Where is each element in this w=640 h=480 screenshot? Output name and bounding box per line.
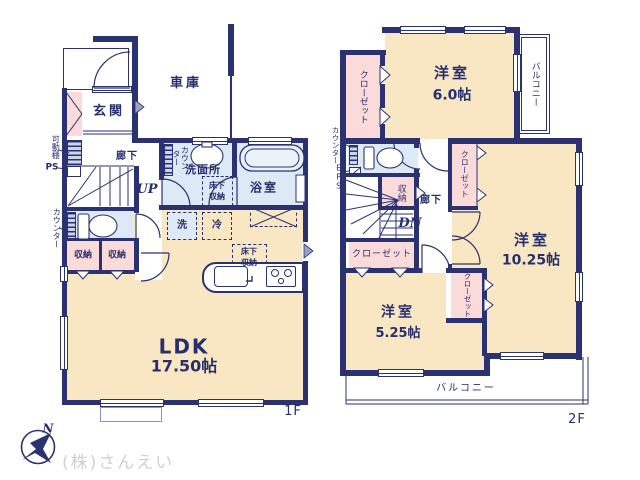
- balcony-door: [513, 54, 521, 92]
- wall: [380, 50, 385, 66]
- room-525jo: [345, 273, 446, 371]
- label-fridge: 冷: [212, 221, 222, 232]
- wall: [340, 50, 346, 376]
- wall: [93, 36, 137, 42]
- label-washroom: 洗面所: [185, 164, 221, 176]
- watermark: (株)さんえい: [62, 448, 174, 473]
- wall: [62, 282, 67, 316]
- label-ldk-name: LDK: [159, 337, 210, 358]
- room-6jo: [385, 32, 515, 139]
- wall: [380, 84, 385, 108]
- wall: [448, 138, 582, 144]
- wall: [424, 370, 490, 376]
- label-balcony-south: バルコニー: [436, 384, 496, 395]
- wall: [134, 238, 139, 272]
- window: [92, 86, 132, 93]
- wall: [446, 27, 464, 33]
- wall: [340, 138, 420, 144]
- wall: [448, 143, 452, 212]
- label-floor-2f: 2F: [568, 413, 586, 427]
- entrance-porch: [63, 48, 129, 90]
- label-underfloor-front-l2: 収納: [209, 193, 225, 201]
- wall-garage-roofline: [230, 76, 232, 142]
- window: [500, 352, 544, 360]
- room-bath: [233, 143, 305, 210]
- label-room1025-name: 洋室: [514, 233, 550, 249]
- back-door-opening: [302, 242, 310, 261]
- compass-needle: [22, 433, 51, 463]
- label-room525-name: 洋室: [381, 306, 415, 321]
- label-hallway-2f: 廊下: [420, 196, 442, 207]
- label-floor-1f: 1F: [284, 405, 302, 419]
- label-room6-name: 洋室: [434, 66, 470, 82]
- label-room525-size: 5.25帖: [375, 327, 420, 341]
- wall: [514, 92, 520, 143]
- wall: [303, 143, 308, 243]
- window: [248, 137, 292, 145]
- label-entrance: 玄関: [93, 105, 125, 119]
- label-garage: 車庫: [170, 77, 202, 91]
- wall-garage-roofline: [228, 24, 234, 76]
- label-room1025-size: 10.25帖: [502, 254, 560, 269]
- label-eps: EPS: [334, 164, 342, 191]
- room-525jo-extension: [446, 322, 484, 371]
- corridor-strip-1f: [135, 210, 162, 280]
- wall: [340, 370, 378, 376]
- wall: [132, 36, 138, 143]
- shoe-cabinet: [66, 92, 82, 136]
- window-sliding-door: [100, 399, 164, 407]
- label-closet-northwest: クローゼット: [357, 70, 366, 124]
- wall: [490, 353, 500, 359]
- floorplan-canvas: { "colors":{"wall_navy":"#2a3272","text_…: [0, 0, 640, 480]
- window: [60, 266, 68, 282]
- label-movable-shelf: 可動棚: [51, 135, 59, 159]
- label-balcony-east: バルコニー: [529, 62, 538, 107]
- wall: [99, 240, 102, 271]
- label-underfloor-front-l1: 床下: [209, 182, 225, 190]
- window: [60, 316, 68, 370]
- wall: [482, 268, 487, 356]
- wall: [232, 143, 237, 177]
- label-counter-2f: カウンター: [331, 126, 339, 164]
- movable-shelf: [67, 140, 82, 165]
- wall: [446, 318, 486, 323]
- compass-north-label: N: [43, 423, 54, 436]
- wall: [345, 238, 418, 242]
- terrace-step: [100, 407, 162, 422]
- toilet-counter-1f: [67, 212, 76, 239]
- wall: [159, 143, 164, 180]
- label-bath: 浴室: [250, 182, 278, 195]
- label-closet-east: クローゼット: [460, 150, 468, 198]
- window: [400, 26, 446, 34]
- wall: [514, 27, 520, 54]
- kitchen-stove: [266, 266, 296, 287]
- label-toilet-counter-1f: カウンター: [52, 208, 60, 248]
- label-pipe-space: PS: [45, 163, 58, 172]
- wall: [576, 138, 582, 152]
- window: [575, 152, 583, 186]
- wall: [576, 186, 582, 272]
- window: [575, 272, 583, 302]
- room-toilet-1f: [67, 210, 133, 240]
- wall: [62, 400, 102, 405]
- kitchen-sink: [214, 266, 248, 287]
- label-stairs-dn: DN: [398, 217, 421, 231]
- wall: [382, 27, 400, 33]
- label-closet-west: クローゼット: [352, 250, 412, 259]
- label-ldk-size: 17.50帖: [151, 359, 218, 376]
- label-closet-middle: クローゼット: [463, 273, 471, 318]
- window: [378, 369, 424, 377]
- label-storage-b: 収納: [108, 251, 126, 260]
- label-room6-size: 6.0帖: [433, 89, 472, 104]
- wall: [414, 143, 419, 148]
- pantry-box: [250, 207, 297, 227]
- wall: [378, 206, 419, 210]
- door-arc-room6: [420, 143, 448, 171]
- label-washer: 洗: [177, 221, 187, 232]
- label-hallway-1f: 廊下: [116, 152, 138, 163]
- wall: [164, 400, 198, 405]
- window-sliding-door: [198, 399, 264, 407]
- toilet-counter-2f: [349, 145, 358, 165]
- wall: [576, 302, 582, 360]
- wall: [67, 207, 135, 211]
- window: [192, 137, 228, 145]
- pipe-space-box: [67, 166, 81, 177]
- window: [464, 26, 506, 34]
- wall: [544, 353, 582, 359]
- wall: [340, 268, 422, 273]
- wall: [159, 205, 308, 210]
- label-stairs-up: UP: [136, 183, 157, 197]
- label-underfloor-kitchen-l1: 床下: [241, 248, 257, 256]
- wall: [345, 173, 420, 177]
- label-storage-a: 収納: [74, 251, 92, 260]
- wall: [448, 206, 478, 210]
- label-storage-2f: 収納: [395, 184, 404, 202]
- label-underfloor-kitchen-l2: 収納: [241, 259, 257, 267]
